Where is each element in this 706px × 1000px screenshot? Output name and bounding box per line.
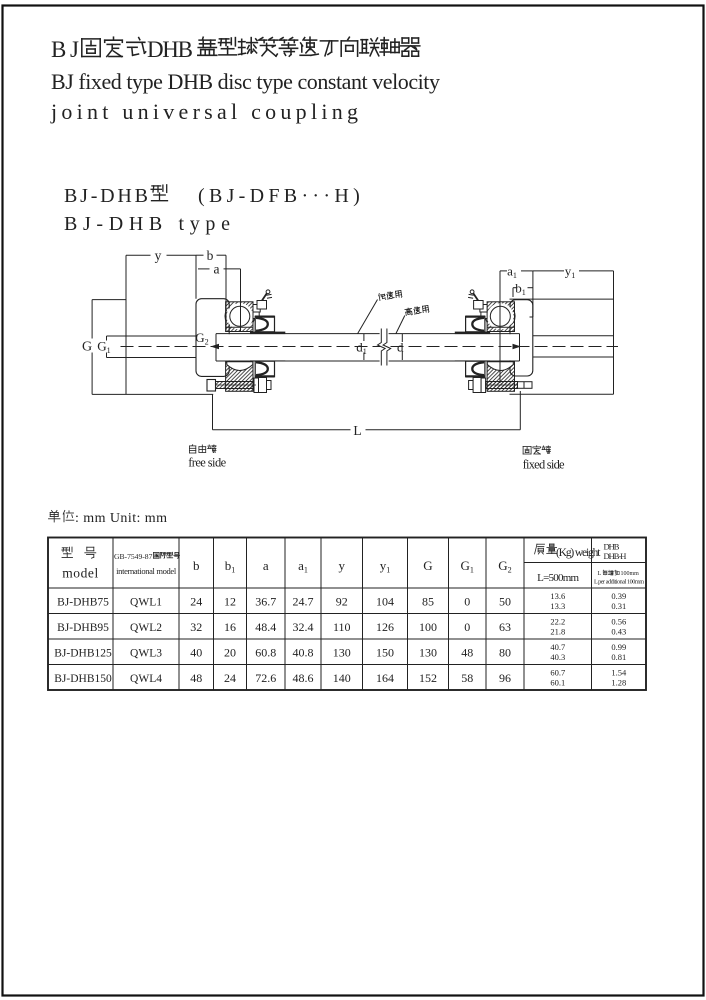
- svg-text:110: 110: [333, 620, 351, 634]
- svg-text:24.7: 24.7: [293, 595, 314, 609]
- svg-text:DHB: DHB: [604, 542, 620, 552]
- svg-text:140: 140: [333, 671, 351, 685]
- svg-text:a: a: [214, 262, 220, 277]
- svg-text:DHB-H: DHB-H: [604, 551, 627, 561]
- svg-text:0.43: 0.43: [611, 627, 626, 637]
- svg-text:0: 0: [464, 620, 470, 634]
- svg-text:a1: a1: [298, 558, 308, 575]
- svg-text:48: 48: [190, 671, 202, 685]
- svg-text:y: y: [339, 558, 346, 573]
- svg-text:130: 130: [333, 646, 351, 660]
- svg-text:0.39: 0.39: [611, 591, 626, 601]
- svg-text:G1: G1: [97, 339, 110, 356]
- svg-text:150: 150: [376, 646, 394, 660]
- svg-text:40: 40: [190, 646, 202, 660]
- svg-text:0.31: 0.31: [611, 601, 626, 611]
- svg-text:0.56: 0.56: [611, 617, 626, 627]
- svg-text:BJ fixed type DHB disc type co: BJ fixed type DHB disc type constant vel…: [51, 69, 440, 94]
- svg-text:QWL3: QWL3: [130, 648, 162, 660]
- svg-text:1.54: 1.54: [611, 668, 627, 678]
- svg-text:(BJ-DFB···H): (BJ-DFB···H): [198, 185, 364, 207]
- svg-text:model: model: [62, 566, 99, 581]
- svg-text:130: 130: [419, 646, 437, 660]
- svg-text:1.28: 1.28: [611, 678, 626, 688]
- svg-text:international model: international model: [116, 566, 177, 576]
- svg-text:40.8: 40.8: [293, 646, 314, 660]
- svg-text:b: b: [193, 558, 200, 573]
- svg-text:fixed side: fixed side: [523, 458, 565, 472]
- svg-text:G2: G2: [498, 558, 511, 575]
- svg-text:63: 63: [499, 620, 511, 634]
- svg-text:QWL4: QWL4: [130, 673, 162, 685]
- svg-text:BJ: BJ: [51, 37, 83, 62]
- svg-text:GB-7549-87: GB-7549-87: [114, 552, 153, 561]
- svg-text:24: 24: [224, 671, 236, 685]
- svg-text:BJ-DHB150: BJ-DHB150: [54, 673, 112, 685]
- svg-text:32.4: 32.4: [293, 620, 314, 634]
- svg-text:13.6: 13.6: [550, 591, 565, 601]
- svg-text:80: 80: [499, 646, 511, 660]
- svg-text:152: 152: [419, 671, 437, 685]
- svg-text:L: L: [353, 423, 361, 438]
- svg-text:24: 24: [190, 595, 202, 609]
- svg-text:60.7: 60.7: [550, 668, 565, 678]
- svg-text:60.1: 60.1: [550, 678, 565, 688]
- svg-text:L per additional 100mm: L per additional 100mm: [594, 579, 644, 586]
- svg-text:L: L: [598, 571, 602, 577]
- svg-text:a: a: [263, 558, 269, 573]
- svg-text:BJ-DHB75: BJ-DHB75: [57, 597, 109, 609]
- svg-text:0.99: 0.99: [611, 642, 626, 652]
- svg-text:: mm Unit: mm: : mm Unit: mm: [75, 511, 167, 526]
- svg-text:y: y: [155, 248, 162, 263]
- svg-text:(Kg) weight: (Kg) weight: [556, 547, 601, 559]
- svg-text:32: 32: [190, 620, 202, 634]
- svg-text:40.3: 40.3: [550, 652, 565, 662]
- svg-text:48: 48: [461, 646, 473, 660]
- svg-text:d: d: [397, 340, 404, 355]
- svg-text:BJ-DHB125: BJ-DHB125: [54, 648, 112, 660]
- svg-text:BJ-DHB type: BJ-DHB type: [64, 213, 236, 235]
- svg-text:BJ-DHB95: BJ-DHB95: [57, 622, 109, 634]
- svg-text:joint universal coupling: joint universal coupling: [50, 99, 362, 124]
- svg-text:48.6: 48.6: [293, 671, 314, 685]
- svg-text:96: 96: [499, 671, 511, 685]
- svg-text:DHB: DHB: [147, 37, 193, 62]
- svg-text:60.8: 60.8: [255, 646, 276, 660]
- svg-text:b1: b1: [515, 280, 526, 297]
- svg-text:50: 50: [499, 595, 511, 609]
- svg-text:20: 20: [224, 646, 236, 660]
- svg-text:85: 85: [422, 595, 434, 609]
- svg-text:21.8: 21.8: [550, 627, 565, 637]
- svg-text:L=500mm: L=500mm: [537, 572, 579, 584]
- svg-text:16: 16: [224, 620, 236, 634]
- svg-text:0.81: 0.81: [611, 652, 626, 662]
- svg-text:126: 126: [376, 620, 394, 634]
- svg-text:G: G: [423, 558, 432, 573]
- svg-text:100mm: 100mm: [621, 571, 640, 577]
- svg-text:b1: b1: [225, 558, 236, 575]
- svg-text:36.7: 36.7: [255, 595, 276, 609]
- svg-text:a1: a1: [507, 264, 517, 281]
- svg-text:BJ-DHB: BJ-DHB: [64, 185, 151, 207]
- svg-text:QWL1: QWL1: [130, 597, 162, 609]
- svg-text:100: 100: [419, 620, 437, 634]
- svg-text:G: G: [82, 340, 92, 355]
- svg-text:104: 104: [376, 595, 394, 609]
- svg-text:92: 92: [336, 595, 348, 609]
- svg-text:13.3: 13.3: [550, 601, 565, 611]
- svg-text:22.2: 22.2: [550, 617, 565, 627]
- svg-text:QWL2: QWL2: [130, 622, 162, 634]
- svg-text:164: 164: [376, 671, 394, 685]
- svg-text:y1: y1: [565, 264, 576, 281]
- svg-text:58: 58: [461, 671, 473, 685]
- svg-text:72.6: 72.6: [255, 671, 276, 685]
- svg-text:free side: free side: [188, 456, 226, 470]
- svg-text:48.4: 48.4: [255, 620, 276, 634]
- svg-text:G1: G1: [461, 558, 474, 575]
- svg-text:40.7: 40.7: [550, 642, 565, 652]
- svg-text:y1: y1: [380, 558, 391, 575]
- svg-text:0: 0: [464, 595, 470, 609]
- svg-text:12: 12: [224, 595, 236, 609]
